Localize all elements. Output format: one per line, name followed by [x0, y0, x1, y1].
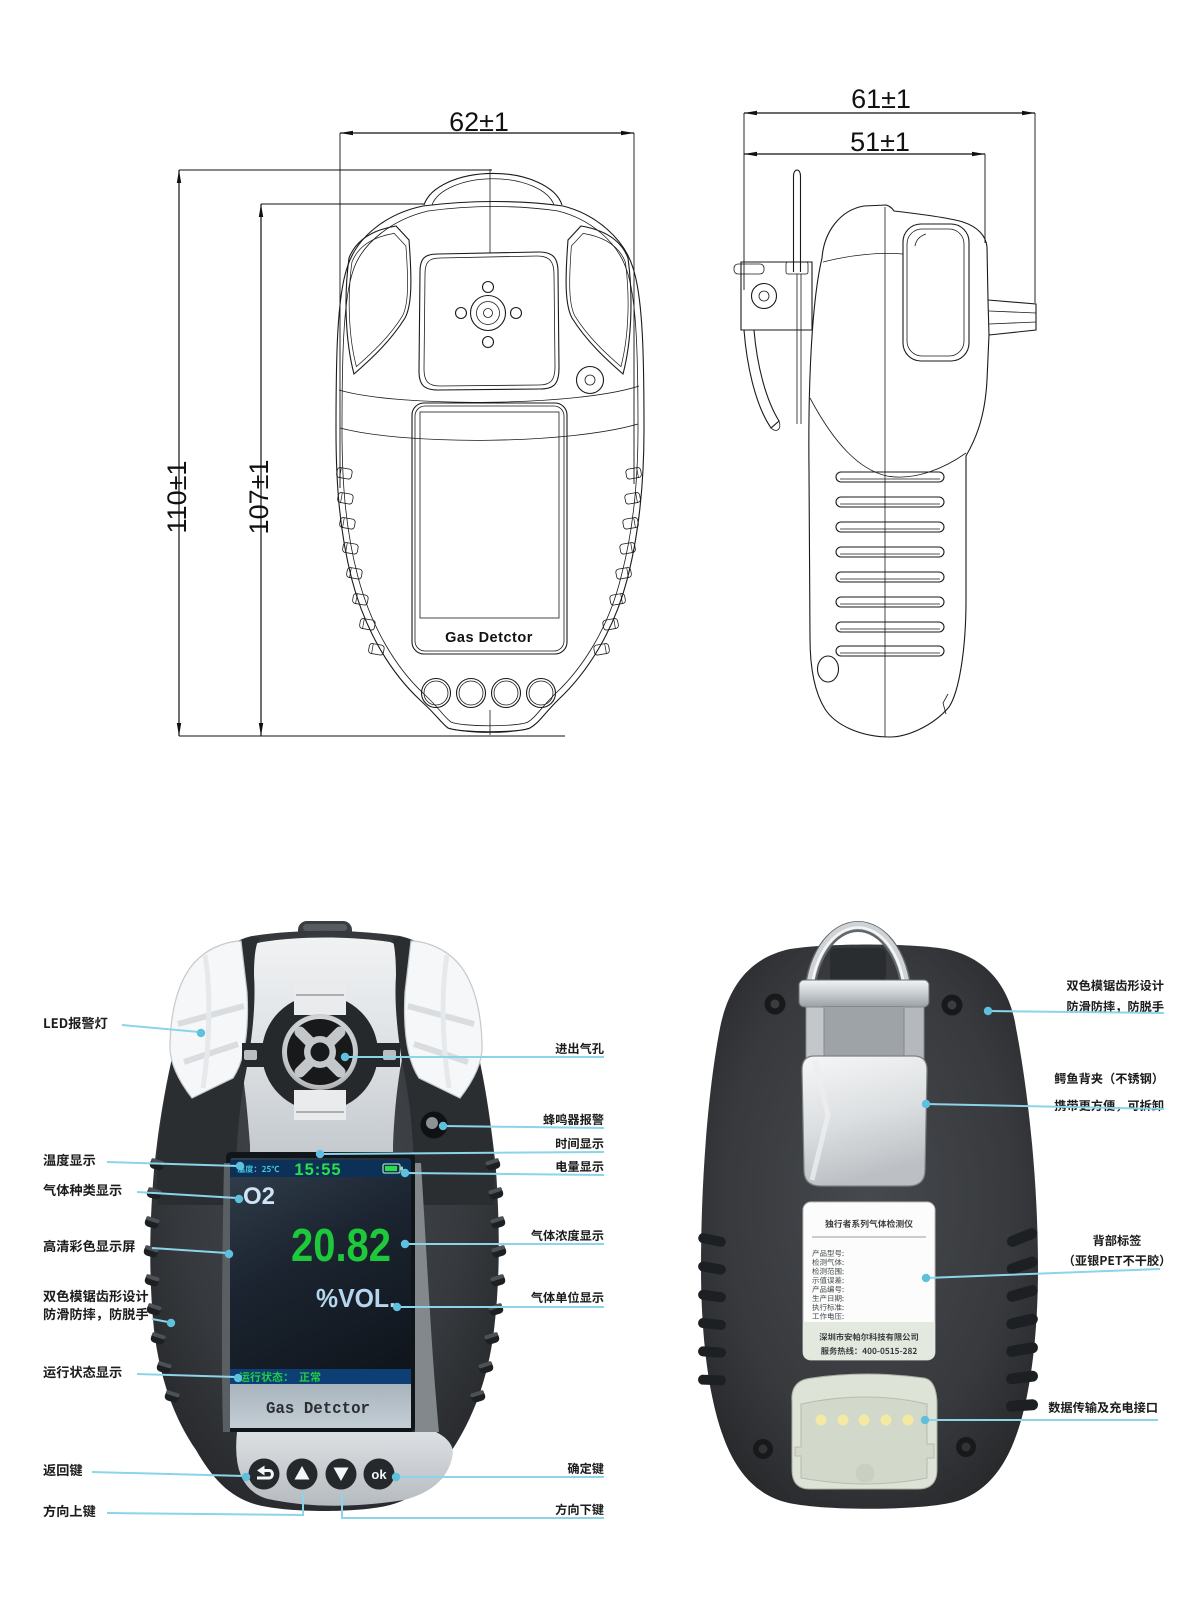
svg-text:110±1: 110±1 [162, 461, 192, 534]
svg-text:107±1: 107±1 [244, 460, 274, 535]
svg-text:O2: O2 [243, 1183, 275, 1210]
svg-text:Gas Detctor: Gas Detctor [445, 630, 533, 646]
svg-text:20.82: 20.82 [291, 1219, 391, 1271]
svg-text:15:55: 15:55 [294, 1161, 341, 1179]
svg-text:ok: ok [371, 1467, 387, 1482]
svg-text:51±1: 51±1 [850, 127, 910, 157]
svg-text:%VOL.: %VOL. [316, 1283, 396, 1313]
svg-text:61±1: 61±1 [851, 84, 911, 114]
svg-text:Gas Detctor: Gas Detctor [266, 1400, 370, 1419]
